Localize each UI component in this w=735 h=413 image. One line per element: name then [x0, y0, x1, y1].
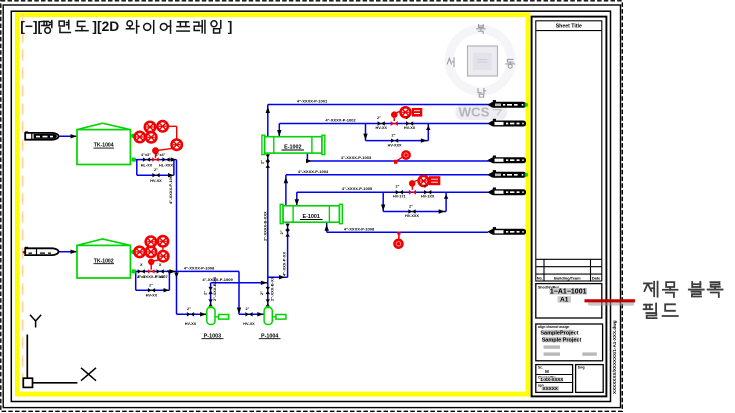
svg-text:4"-XXXX-P-1008: 4"-XXXX-P-1008: [184, 266, 215, 271]
svg-text:XXXXXXX/XXXXXX/1-A1-XXX.dwg: XXXXXXX/XXXXXX/1-A1-XXX.dwg: [612, 320, 617, 394]
svg-text:WCS: WCS: [459, 105, 490, 120]
svg-text:4"-XXXX-P-1005: 4"-XXXX-P-1005: [342, 186, 373, 191]
svg-text:HV-XX: HV-XX: [185, 322, 197, 326]
svg-text:HL-XXX: HL-XXX: [159, 164, 173, 168]
svg-text:XXXXX: XXXXX: [543, 386, 559, 391]
svg-text:HV-171: HV-171: [393, 195, 406, 199]
svg-text:2": 2": [406, 116, 410, 120]
svg-text:3"x?: 3"x?: [137, 275, 146, 279]
svg-text:No.: No.: [537, 275, 543, 280]
svg-text:HV-XXX: HV-XXX: [388, 143, 402, 147]
svg-text:X: X: [159, 263, 162, 267]
svg-text:4"x3": 4"x3": [141, 153, 151, 157]
svg-text:SampleProject: SampleProject: [540, 331, 578, 337]
svg-text:[−][: [−][: [20, 19, 42, 34]
svg-text:4"-XXXX-P-1008: 4"-XXXX-P-1008: [344, 226, 375, 231]
svg-text:align channel assign: align channel assign: [538, 325, 569, 329]
svg-text:2": 2": [396, 185, 400, 189]
svg-text:Sc.: Sc.: [538, 365, 543, 369]
svg-text:M: M: [545, 369, 549, 374]
svg-text:4"-XXXX-P-1002: 4"-XXXX-P-1002: [325, 118, 356, 123]
svg-text:2": 2": [259, 160, 264, 164]
svg-text:HV-XX: HV-XX: [146, 293, 158, 297]
svg-text:HV-XX: HV-XX: [404, 126, 416, 130]
svg-text:2": 2": [187, 307, 191, 311]
svg-text:2"-XXXX-B-XXX: 2"-XXXX-B-XXX: [263, 211, 268, 241]
svg-text:4"-XXXX-P-1003: 4"-XXXX-P-1003: [341, 155, 372, 160]
svg-text:2": 2": [203, 291, 208, 295]
svg-text:2": 2": [259, 291, 264, 295]
svg-text:4"-XXXX-P-1009: 4"-XXXX-P-1009: [202, 277, 233, 282]
svg-text:HL-XX: HL-XX: [141, 164, 153, 168]
svg-text:X: X: [140, 263, 143, 267]
svg-text:2": 2": [377, 116, 381, 120]
svg-text:Sheet Title: Sheet Title: [556, 24, 582, 30]
svg-text:Building/Team: Building/Team: [554, 275, 581, 280]
svg-text:4"-XXXX-P-1004: 4"-XXXX-P-1004: [298, 169, 329, 174]
svg-text:4"-XXXX-P-1007: 4"-XXXX-P-1007: [168, 173, 173, 204]
svg-text:]: ]: [228, 19, 233, 34]
svg-text:][2D: ][2D: [92, 19, 119, 34]
svg-text:4"-XXX-P-XX: 4"-XXX-P-XX: [281, 252, 286, 276]
svg-text:HV-1XX: HV-1XX: [421, 195, 435, 199]
svg-text:2": 2": [279, 230, 284, 234]
svg-text:1−A1−1001: 1−A1−1001: [550, 289, 587, 296]
svg-text:HV-XX: HV-XX: [243, 322, 255, 326]
svg-text:2": 2": [392, 134, 396, 138]
svg-text:?"x4": ?"x4": [155, 275, 165, 279]
svg-text:HV-XXX: HV-XXX: [405, 214, 419, 218]
svg-text:Dwg: Dwg: [578, 365, 585, 369]
svg-text:2": 2": [154, 168, 158, 172]
svg-text:2": 2": [246, 307, 250, 311]
svg-text:2": 2": [409, 205, 413, 209]
svg-text:1-XX-XXXX: 1-XX-XXXX: [540, 377, 563, 382]
svg-text:HV-XX: HV-XX: [375, 126, 387, 130]
svg-text:2"-XXX-B-XX: 2"-XXX-B-XX: [212, 276, 217, 301]
svg-text:A1: A1: [560, 297, 569, 304]
svg-text:4"-XXXX-P-1001: 4"-XXXX-P-1001: [297, 99, 328, 104]
svg-text:HV-XX: HV-XX: [150, 179, 162, 183]
svg-text:2"-XXX-B-XX: 2"-XXX-B-XX: [270, 276, 275, 301]
svg-text:3"x4": 3"x4": [156, 153, 166, 157]
svg-text:Date: Date: [592, 275, 601, 280]
svg-text:2": 2": [149, 283, 153, 287]
svg-text:2": 2": [424, 185, 428, 189]
svg-text:Sample Project: Sample Project: [542, 338, 582, 344]
